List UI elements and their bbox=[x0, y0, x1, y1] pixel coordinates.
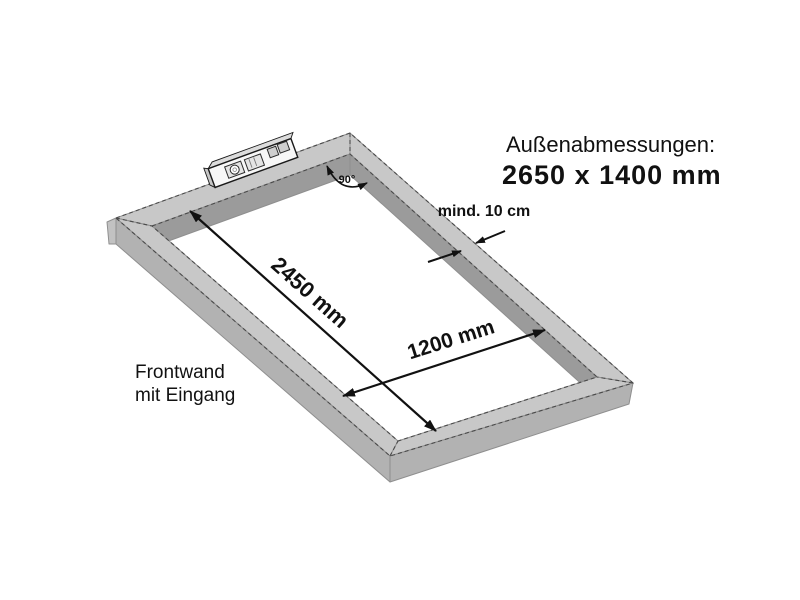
frame-foundation-diagram: 90° 2450 mm 1200 mm mind. 10 cm Außenabm… bbox=[0, 0, 800, 600]
rail-width-label: mind. 10 cm bbox=[438, 203, 530, 220]
corner-left-end-cap bbox=[107, 218, 116, 244]
front-wall-label: Frontwand mit Eingang bbox=[135, 362, 235, 406]
diagram-canvas: 90° 2450 mm 1200 mm mind. 10 cm Außenabm… bbox=[0, 0, 800, 600]
front-wall-label-line1: Frontwand bbox=[135, 362, 225, 383]
wall-back-right-inner-face bbox=[350, 154, 597, 398]
corner-angle-label: 90° bbox=[339, 174, 356, 186]
wall-end-right-top-face bbox=[390, 377, 633, 456]
outer-dimensions-block: Außenabmessungen: 2650 x 1400 mm bbox=[502, 132, 722, 190]
wall-front-left-outer-face bbox=[116, 218, 390, 482]
outer-dimensions-title: Außenabmessungen: bbox=[506, 132, 715, 157]
inner-width-label: 1200 mm bbox=[405, 315, 498, 364]
rail-width-arrow-outer bbox=[476, 231, 505, 243]
wall-front-left-top-face bbox=[116, 218, 398, 456]
front-wall-label-line2: mit Eingang bbox=[135, 385, 235, 406]
inner-width-dimension: 1200 mm bbox=[343, 315, 545, 396]
outer-dimensions-value: 2650 x 1400 mm bbox=[502, 160, 722, 190]
